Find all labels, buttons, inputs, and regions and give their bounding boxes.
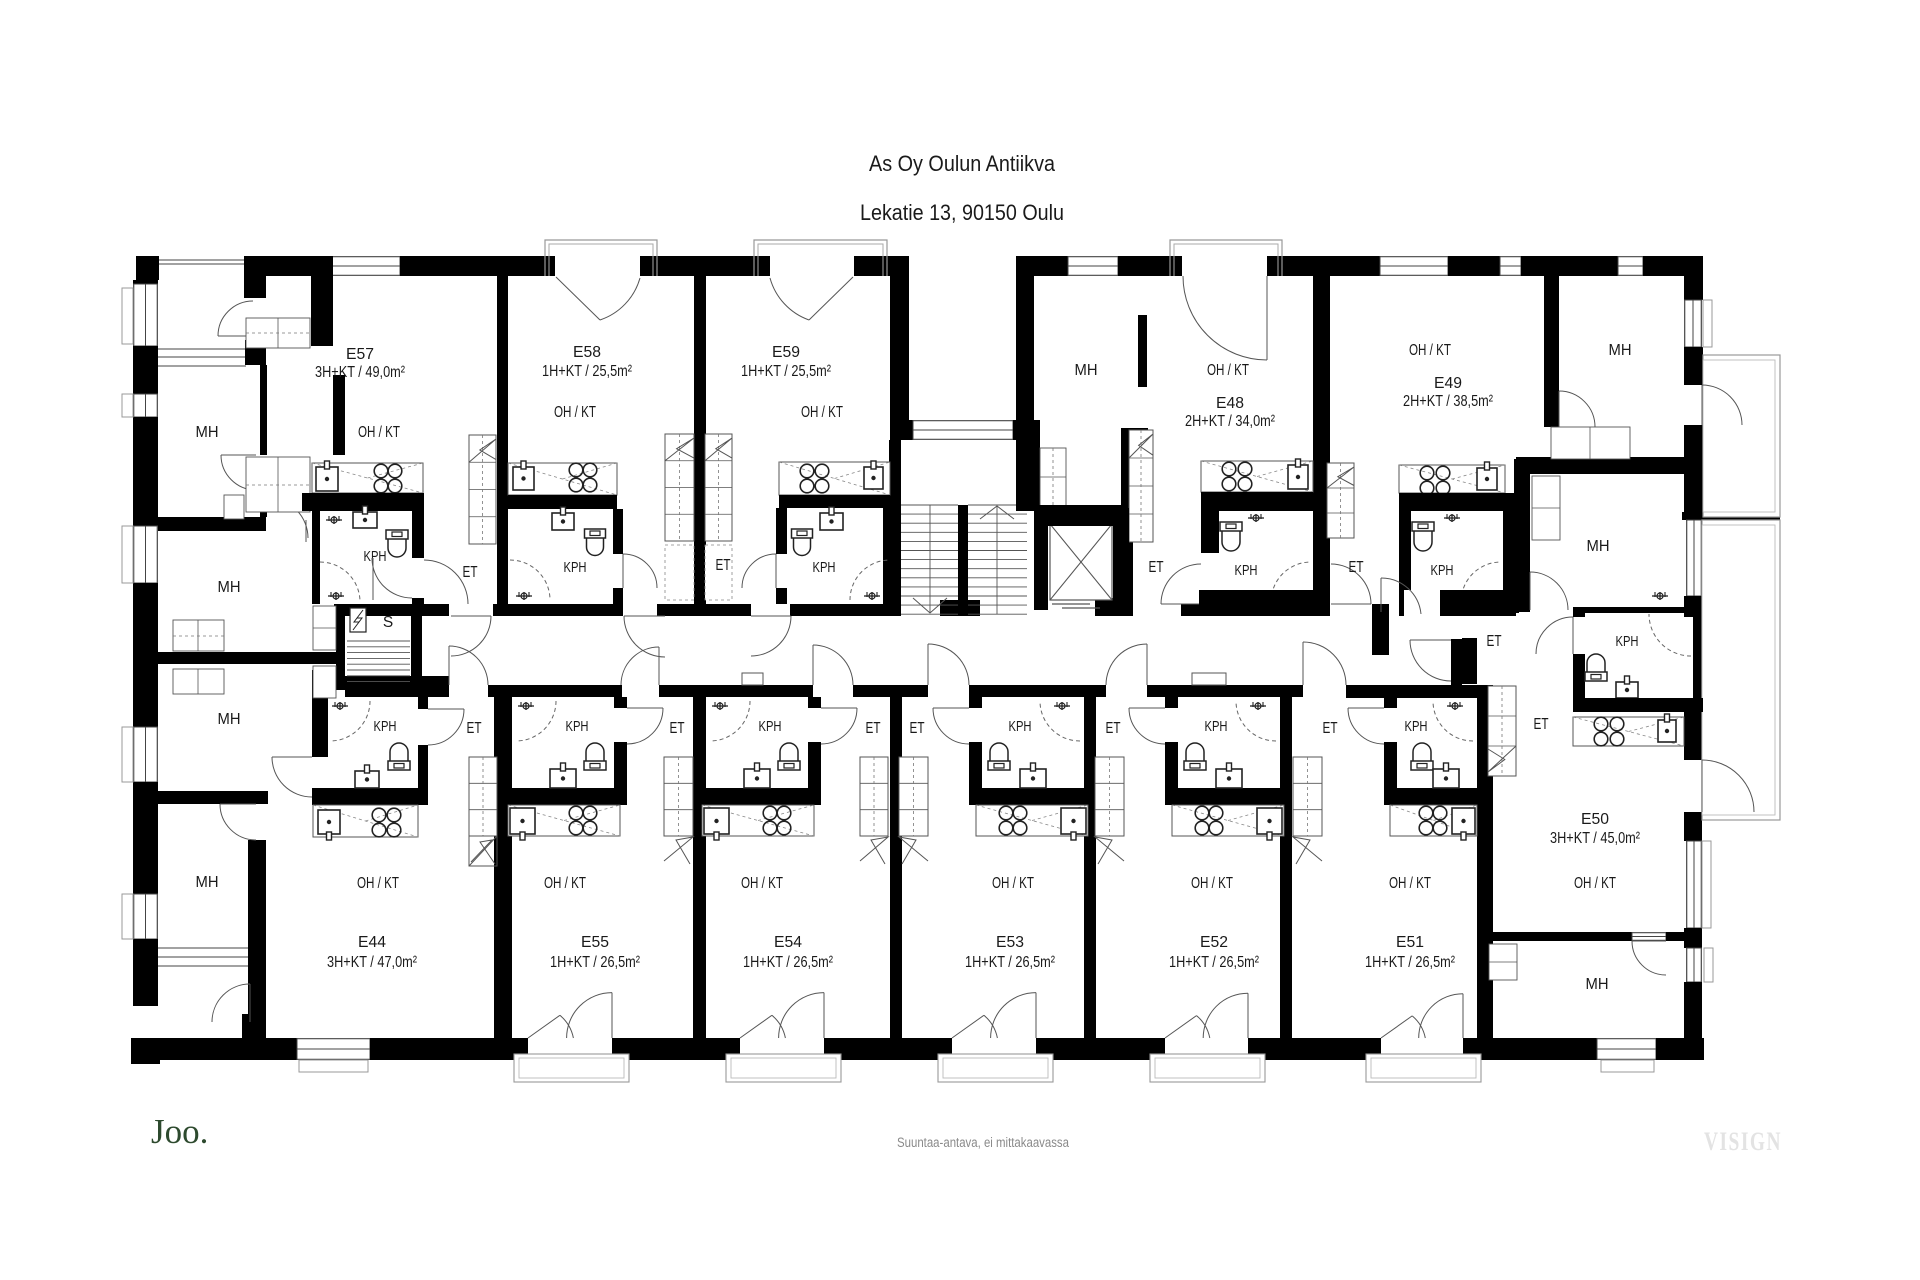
- svg-text:ET: ET: [670, 720, 685, 737]
- svg-text:MH: MH: [1075, 362, 1098, 379]
- svg-text:As Oy Oulun Antiikva: As Oy Oulun Antiikva: [869, 151, 1056, 176]
- svg-text:E49: E49: [1434, 375, 1462, 392]
- svg-text:1H+KT / 25,5m²: 1H+KT / 25,5m²: [741, 363, 832, 380]
- svg-text:KPH: KPH: [566, 719, 589, 735]
- svg-text:1H+KT / 26,5m²: 1H+KT / 26,5m²: [965, 954, 1056, 971]
- svg-text:ET: ET: [1149, 559, 1164, 576]
- svg-text:E44: E44: [358, 934, 386, 951]
- svg-text:3H+KT / 45,0m²: 3H+KT / 45,0m²: [1550, 830, 1641, 847]
- svg-text:Lekatie 13, 90150 Oulu: Lekatie 13, 90150 Oulu: [860, 200, 1064, 225]
- svg-text:1H+KT / 26,5m²: 1H+KT / 26,5m²: [743, 954, 834, 971]
- svg-text:1H+KT / 26,5m²: 1H+KT / 26,5m²: [1365, 954, 1456, 971]
- svg-text:MH: MH: [1609, 342, 1632, 359]
- svg-text:2H+KT / 34,0m²: 2H+KT / 34,0m²: [1185, 413, 1276, 430]
- svg-text:KPH: KPH: [813, 560, 836, 576]
- svg-text:OH / KT: OH / KT: [741, 875, 783, 892]
- svg-text:ET: ET: [463, 564, 478, 581]
- svg-text:MH: MH: [196, 424, 219, 441]
- svg-text:OH / KT: OH / KT: [357, 875, 399, 892]
- svg-text:OH / KT: OH / KT: [801, 404, 843, 421]
- svg-text:ET: ET: [1106, 720, 1121, 737]
- svg-text:OH / KT: OH / KT: [1207, 362, 1249, 379]
- svg-text:OH / KT: OH / KT: [1409, 342, 1451, 359]
- svg-text:E53: E53: [996, 934, 1024, 951]
- svg-text:KPH: KPH: [759, 719, 782, 735]
- svg-text:KPH: KPH: [1009, 719, 1032, 735]
- svg-text:OH / KT: OH / KT: [1191, 875, 1233, 892]
- svg-text:E55: E55: [581, 934, 609, 951]
- svg-text:E50: E50: [1581, 811, 1609, 828]
- svg-text:E51: E51: [1396, 934, 1424, 951]
- svg-text:3H+KT / 47,0m²: 3H+KT / 47,0m²: [327, 954, 418, 971]
- svg-text:OH / KT: OH / KT: [1389, 875, 1431, 892]
- svg-text:ET: ET: [716, 557, 731, 574]
- svg-text:MH: MH: [196, 874, 219, 891]
- svg-text:KPH: KPH: [1431, 563, 1454, 579]
- svg-text:OH / KT: OH / KT: [1574, 875, 1616, 892]
- svg-text:E48: E48: [1216, 395, 1244, 412]
- svg-text:E52: E52: [1200, 934, 1228, 951]
- svg-text:2H+KT / 38,5m²: 2H+KT / 38,5m²: [1403, 393, 1494, 410]
- svg-text:3H+KT / 49,0m²: 3H+KT / 49,0m²: [315, 364, 406, 381]
- svg-text:MH: MH: [218, 711, 241, 728]
- svg-text:MH: MH: [218, 579, 241, 596]
- svg-text:ET: ET: [1349, 559, 1364, 576]
- svg-text:KPH: KPH: [364, 549, 387, 565]
- svg-text:OH / KT: OH / KT: [554, 404, 596, 421]
- svg-text:ET: ET: [1487, 633, 1502, 650]
- svg-text:KPH: KPH: [1235, 563, 1258, 579]
- svg-text:OH / KT: OH / KT: [544, 875, 586, 892]
- svg-text:E59: E59: [772, 344, 800, 361]
- svg-text:VISIGN: VISIGN: [1704, 1127, 1782, 1156]
- svg-text:OH / KT: OH / KT: [992, 875, 1034, 892]
- svg-text:Joo.: Joo.: [151, 1112, 208, 1151]
- svg-text:KPH: KPH: [1405, 719, 1428, 735]
- svg-text:ET: ET: [1534, 716, 1549, 733]
- svg-text:KPH: KPH: [1616, 634, 1639, 650]
- svg-text:E58: E58: [573, 344, 601, 361]
- svg-text:ET: ET: [910, 720, 925, 737]
- svg-text:1H+KT / 25,5m²: 1H+KT / 25,5m²: [542, 363, 633, 380]
- svg-text:MH: MH: [1587, 538, 1610, 555]
- svg-text:MH: MH: [1586, 976, 1609, 993]
- svg-text:ET: ET: [467, 720, 482, 737]
- svg-text:E54: E54: [774, 934, 802, 951]
- svg-text:KPH: KPH: [564, 560, 587, 576]
- svg-text:ET: ET: [1323, 720, 1338, 737]
- svg-text:Suuntaa-antava, ei mittakaavas: Suuntaa-antava, ei mittakaavassa: [897, 1135, 1069, 1150]
- svg-text:KPH: KPH: [1205, 719, 1228, 735]
- svg-text:ET: ET: [866, 720, 881, 737]
- svg-text:1H+KT / 26,5m²: 1H+KT / 26,5m²: [550, 954, 641, 971]
- svg-text:E57: E57: [346, 346, 374, 363]
- svg-text:KPH: KPH: [374, 719, 397, 735]
- svg-text:OH / KT: OH / KT: [358, 424, 400, 441]
- svg-text:S: S: [383, 614, 393, 631]
- svg-text:1H+KT / 26,5m²: 1H+KT / 26,5m²: [1169, 954, 1260, 971]
